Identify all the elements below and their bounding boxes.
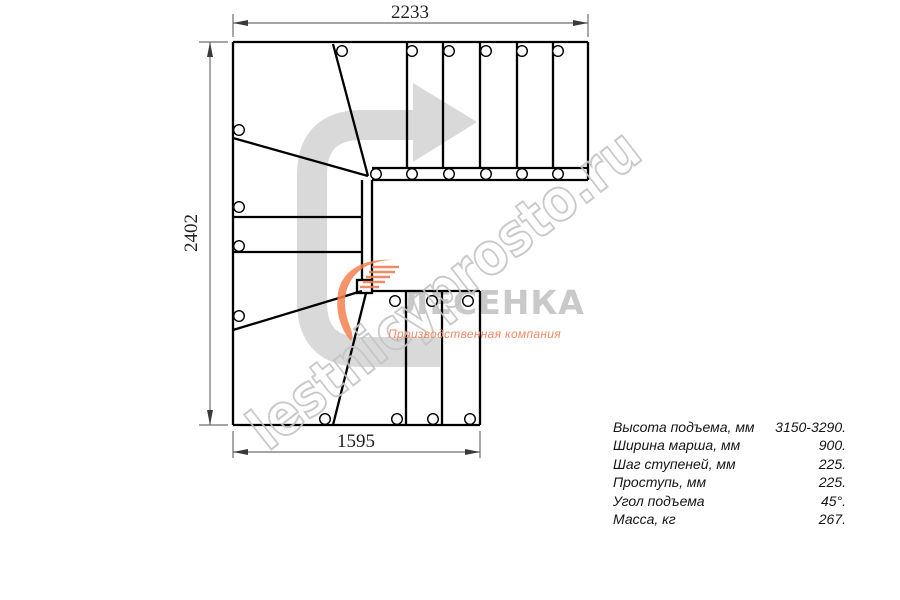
screw-hole xyxy=(517,169,528,180)
screw-hole xyxy=(407,46,418,57)
spec-value: 900. xyxy=(819,436,846,454)
spec-row: Ширина марша, мм 900. xyxy=(613,436,846,454)
screw-hole xyxy=(337,46,348,57)
screw-hole xyxy=(465,414,476,425)
logo-subtitle: Производственная компания xyxy=(388,327,561,341)
spec-row: Масса, кг 267. xyxy=(613,510,846,528)
stair-drawing-page: ЛЕСЕНКА xyxy=(0,0,900,600)
dimension-left-value: 2402 xyxy=(181,214,202,252)
logo-steps-icon xyxy=(360,267,399,287)
dimension-left xyxy=(199,42,228,425)
spec-value: 45°. xyxy=(821,492,846,510)
spec-label: Ширина марша, мм xyxy=(613,436,740,454)
spec-label: Масса, кг xyxy=(613,510,676,528)
dim-arrow-icon xyxy=(465,449,480,455)
dimension-top-value: 2233 xyxy=(391,2,429,23)
screw-hole xyxy=(407,169,418,180)
dim-arrow-icon xyxy=(233,449,248,455)
dimension-bottom-value: 1595 xyxy=(337,431,375,452)
direction-arrow-head-icon xyxy=(413,83,477,162)
spec-value: 225. xyxy=(819,455,846,473)
spec-label: Шаг ступеней, мм xyxy=(613,455,736,473)
screw-hole xyxy=(444,169,455,180)
screw-hole xyxy=(234,241,245,252)
screw-hole xyxy=(481,169,492,180)
spec-row: Шаг ступеней, мм 225. xyxy=(613,455,846,473)
screw-hole xyxy=(371,169,382,180)
dim-arrow-icon xyxy=(207,42,213,57)
screw-hole xyxy=(481,46,492,57)
spec-row: Высота подъема, мм 3150-3290. xyxy=(613,418,846,436)
screw-hole xyxy=(444,46,455,57)
spec-row: Проступь, мм 225. xyxy=(613,473,846,491)
screw-hole xyxy=(553,46,564,57)
screw-hole xyxy=(234,202,245,213)
specs-table: Высота подъема, мм 3150-3290. Ширина мар… xyxy=(613,418,846,528)
spec-label: Проступь, мм xyxy=(613,473,706,491)
spec-value: 225. xyxy=(819,473,846,491)
dim-arrow-icon xyxy=(207,410,213,425)
spec-label: Угол подъема xyxy=(613,492,705,510)
dim-arrow-icon xyxy=(233,20,248,26)
spec-row: Угол подъема 45°. xyxy=(613,492,846,510)
spec-value: 267. xyxy=(819,510,846,528)
screw-hole xyxy=(234,125,245,136)
screw-hole xyxy=(517,46,528,57)
screw-hole xyxy=(428,414,439,425)
dim-arrow-icon xyxy=(573,20,588,26)
spec-value: 3150-3290. xyxy=(775,418,846,436)
spec-label: Высота подъема, мм xyxy=(613,418,755,436)
screw-hole xyxy=(392,414,403,425)
screw-hole xyxy=(234,311,245,322)
